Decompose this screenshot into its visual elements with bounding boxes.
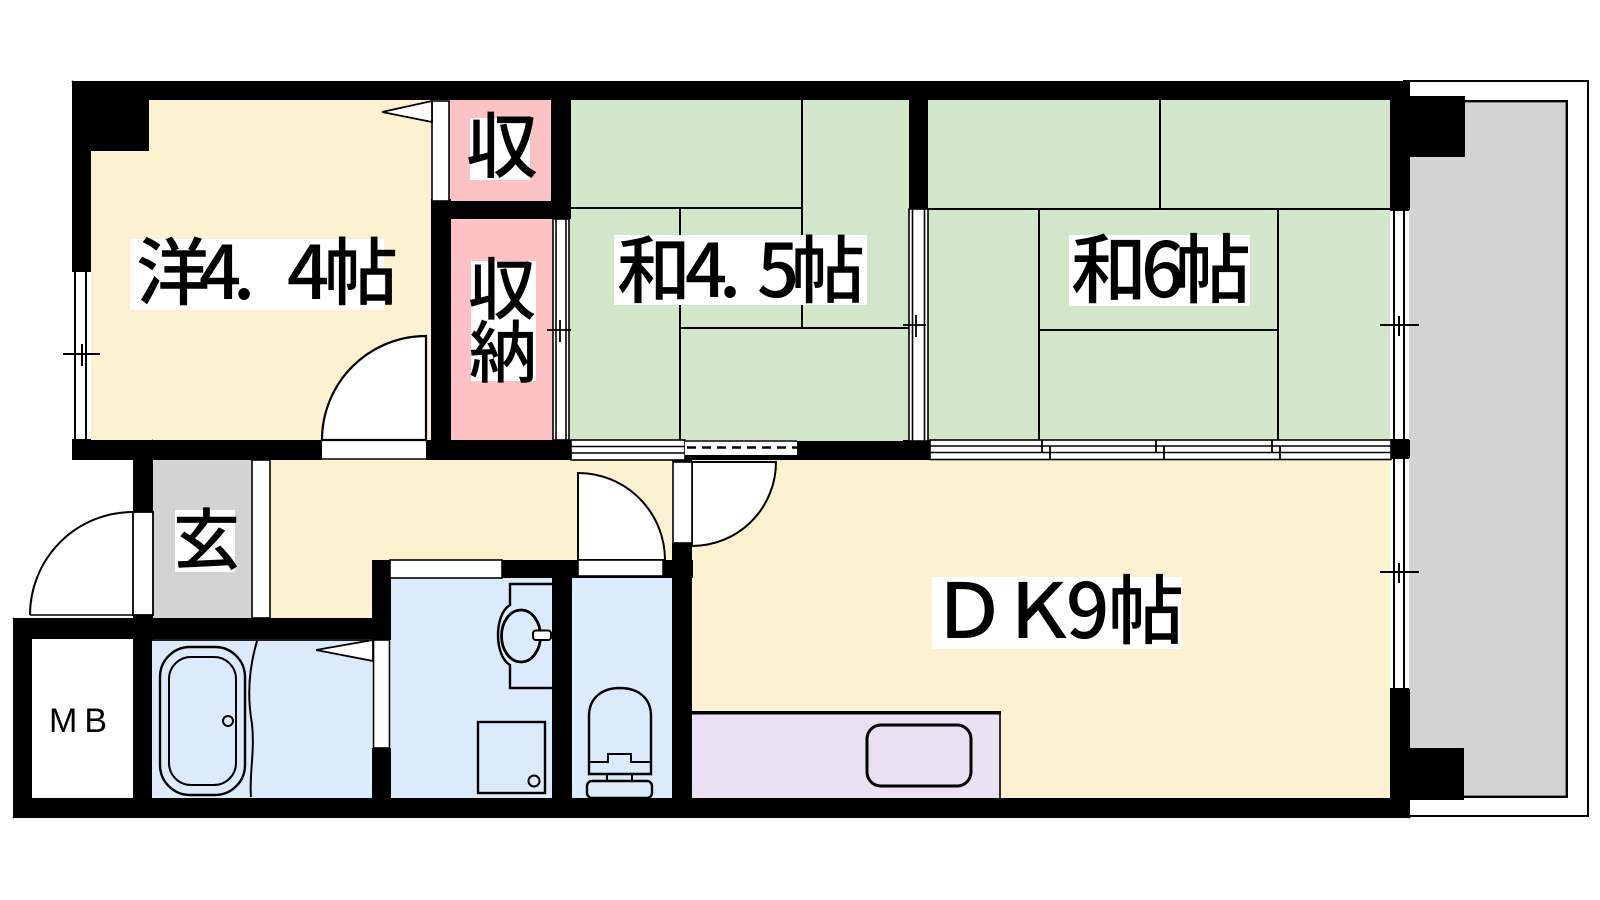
svg-text:MB: MB [49, 702, 114, 740]
